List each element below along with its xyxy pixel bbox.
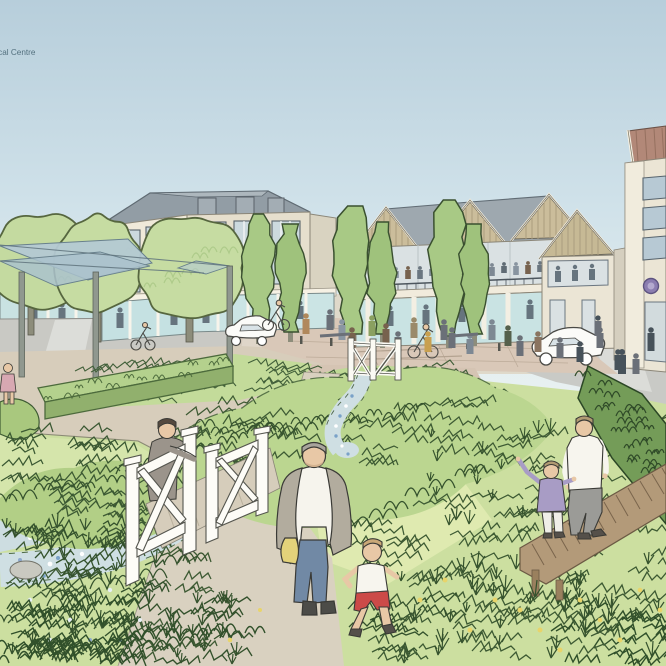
svg-text:Local Centre: Local Centre xyxy=(0,48,36,57)
